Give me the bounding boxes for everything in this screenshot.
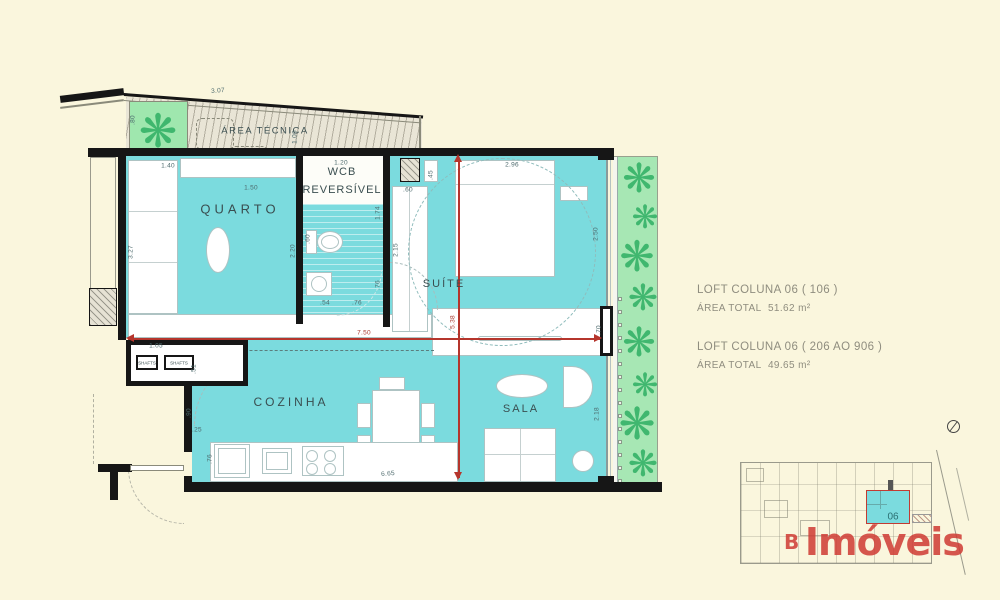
entry-door-leaf [130, 465, 184, 471]
dim-label: 2.18 [594, 407, 601, 421]
column-bottom-right [598, 476, 614, 490]
plant-icon: ❋ [632, 201, 659, 233]
arrowhead-down [454, 472, 462, 484]
pebble [618, 362, 622, 366]
dim-label: 1.50 [244, 185, 258, 192]
info-title-1: LOFT COLUNA 06 ( 106 ) [697, 284, 838, 296]
glass-door-track [613, 157, 618, 487]
red-dim-horizontal [128, 338, 600, 340]
dim-label: 3.07 [211, 87, 225, 95]
floor-plan-page: ❋ ❋ ❋ ❋ ❋ ❋ ❋ ❋ ❋ [0, 0, 1000, 600]
dim-label: .76 [207, 454, 214, 464]
brand-logo: B Imóveis [784, 520, 964, 564]
kitchen-sink-basin [266, 452, 288, 470]
pebble [618, 440, 622, 444]
dim-label: 2.50 [593, 227, 600, 241]
pebble [618, 336, 622, 340]
info-area-1: ÁREA TOTAL 51.62 m² [697, 303, 811, 314]
unit-inner-line [880, 491, 881, 509]
property-line-2 [956, 468, 969, 521]
fridge-inner [218, 448, 246, 474]
pebble [618, 349, 622, 353]
closet-shelf-line [129, 262, 177, 263]
wall-wcb-left [296, 148, 303, 324]
dim-label: 2.15 [393, 243, 400, 257]
pebble [618, 401, 622, 405]
wall-corridor-upper [184, 386, 192, 452]
pebble [618, 310, 622, 314]
pebble [618, 323, 622, 327]
dim-label: .76 [352, 300, 362, 307]
quarto-overhead-cabinet [180, 158, 296, 178]
wall-top [118, 148, 614, 156]
pebble [618, 375, 622, 379]
room-label-sala: SALA [503, 403, 539, 415]
pebble [618, 414, 622, 418]
closet-shelf-line [129, 211, 177, 212]
dim-label: .25 [192, 427, 202, 434]
pebble [618, 427, 622, 431]
dim-label: 2.96 [505, 162, 519, 169]
dim-label: 6.65 [381, 470, 395, 478]
room-label-cozinha: COZINHA [254, 395, 329, 409]
plant-icon: ❋ [619, 236, 654, 278]
wcb-sink-bowl [311, 276, 327, 292]
pillar-hatch [89, 288, 117, 326]
dim-label: 1.40 [161, 163, 175, 170]
dim-label: 1.74 [375, 206, 382, 220]
arrowhead-right [594, 334, 606, 342]
plant-icon: ❋ [622, 323, 656, 363]
pillar-recess [90, 157, 116, 289]
plant-icon: ❋ [632, 369, 659, 401]
wall-wcb-right [383, 148, 390, 327]
dim-label: 2.20 [290, 244, 297, 258]
side-table-round [572, 450, 594, 472]
pebble [618, 297, 622, 301]
room-label-wcb2: REVERSÍVEL [302, 184, 381, 196]
area-value: 51.62 m² [768, 303, 811, 314]
dim-label: 7.50 [357, 330, 371, 337]
plant-icon: ❋ [619, 403, 656, 447]
burner [324, 463, 336, 475]
dim-label: .45 [428, 170, 435, 180]
plant-icon: ❋ [622, 159, 656, 199]
toilet-bowl-inner [321, 235, 339, 249]
shaft-label: SHAFTS [170, 361, 188, 366]
wall-left [118, 156, 126, 340]
wall-bottom [184, 482, 662, 492]
dim-label: .60 [305, 234, 312, 244]
burner [306, 450, 318, 462]
sofa-line [520, 429, 521, 481]
building-room [764, 500, 788, 518]
suite-shaft-hatch [400, 158, 420, 182]
quarto-closet [128, 160, 178, 314]
dim-label: .54 [320, 300, 330, 307]
pebble [618, 388, 622, 392]
dim-label: .76 [375, 280, 382, 290]
area-label: ÁREA TOTAL [697, 303, 762, 314]
dim-label: .51 [191, 364, 198, 374]
brand-logo-name: Imóveis [805, 520, 964, 564]
dining-chair [357, 403, 371, 428]
property-dashed-line [93, 394, 94, 464]
dining-chair [421, 403, 435, 428]
entry-door-arc [128, 468, 184, 524]
red-dim-vertical [458, 158, 460, 478]
dim-label: 1.05 [149, 343, 163, 350]
area-value: 49.65 m² [768, 360, 811, 371]
arrowhead-left [122, 334, 134, 342]
arrowhead-up [454, 150, 462, 162]
column-top-right [598, 148, 614, 160]
info-area-2: ÁREA TOTAL 49.65 m² [697, 360, 811, 371]
quarto-rug [206, 227, 230, 273]
dim-label: .80 [130, 115, 137, 125]
room-label-wcb: WCB [328, 166, 357, 178]
shaft-label: SHAFTS [138, 361, 156, 366]
building-room [746, 468, 764, 482]
burner [306, 463, 318, 475]
burner [324, 450, 336, 462]
room-label-quarto: QUARTO [200, 202, 279, 217]
pebble [618, 453, 622, 457]
dim-label: .70 [596, 325, 603, 335]
dim-label: .90 [186, 408, 193, 418]
dim-label: .60 [403, 187, 413, 194]
unit-inner-line [867, 504, 887, 505]
balcony-garden: ❋ ❋ ❋ ❋ ❋ ❋ ❋ ❋ [613, 156, 658, 488]
brand-logo-prefix: B [784, 530, 799, 554]
room-label-area-tecnica: ÁREA TÉCNICA [221, 126, 309, 137]
area-label: ÁREA TOTAL [697, 360, 762, 371]
suite-swing-circle [408, 158, 596, 346]
info-title-2: LOFT COLUNA 06 ( 206 AO 906 ) [697, 341, 882, 353]
dining-chair [379, 377, 405, 390]
sofa-line [485, 454, 555, 455]
pebble [618, 466, 622, 470]
plant-icon: ❋ [628, 447, 658, 483]
entry-stub-wall-v [110, 469, 118, 500]
wall-pillar-cap [88, 148, 118, 157]
plant-icon: ❋ [628, 281, 658, 317]
room-label-suite: SUÍTE [423, 278, 465, 290]
unit-marker-tick [888, 480, 893, 490]
dim-label: 5.38 [450, 315, 457, 329]
dim-label: 3.27 [128, 245, 135, 259]
coffee-table-oval [496, 374, 548, 398]
